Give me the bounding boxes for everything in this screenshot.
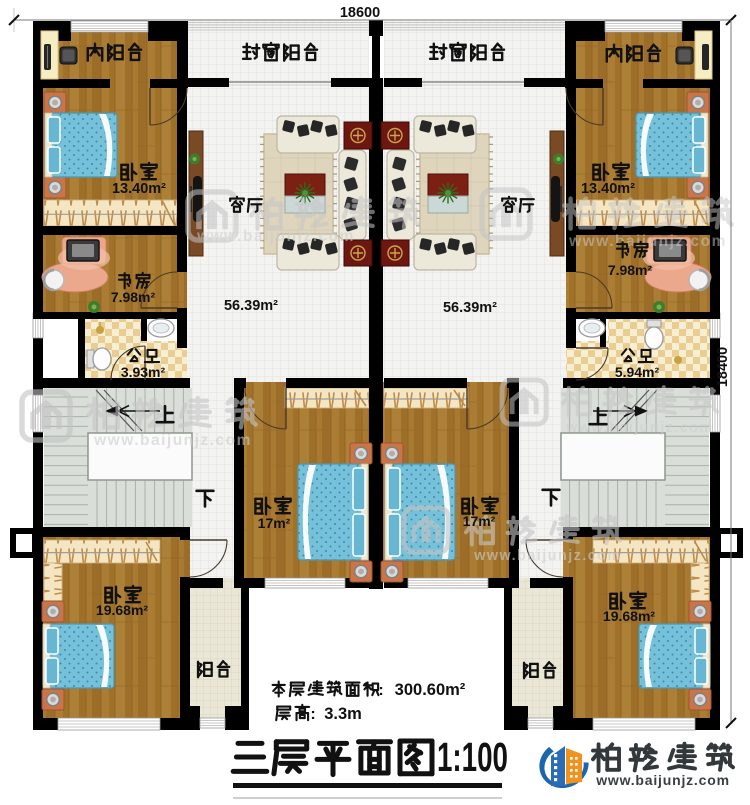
svg-text:300.60m²: 300.60m² — [395, 681, 466, 699]
svg-text:19.68m²: 19.68m² — [96, 602, 148, 618]
svg-text:13.40m²: 13.40m² — [112, 181, 166, 197]
svg-text:17m²: 17m² — [258, 515, 291, 531]
svg-text:7.98m²: 7.98m² — [608, 262, 653, 278]
svg-text:1:100: 1:100 — [437, 734, 508, 780]
svg-text:www.baijunjz.com: www.baijunjz.com — [595, 772, 730, 788]
svg-text:56.39m²: 56.39m² — [224, 298, 278, 314]
svg-text:7.98m²: 7.98m² — [111, 289, 156, 305]
svg-text:19.68m²: 19.68m² — [603, 608, 655, 624]
svg-text:56.39m²: 56.39m² — [443, 300, 497, 316]
svg-text::: : — [378, 682, 383, 699]
svg-text:www.baijunjz.com: www.baijunjz.com — [93, 432, 252, 449]
svg-text::: : — [310, 706, 315, 723]
svg-text:5.94m²: 5.94m² — [615, 364, 660, 380]
svg-text:18600: 18600 — [340, 5, 380, 21]
svg-text:www.baijunjz.com: www.baijunjz.com — [565, 420, 713, 436]
svg-text:13.40m²: 13.40m² — [581, 181, 635, 197]
svg-text:18400: 18400 — [715, 347, 731, 387]
svg-text:3.93m²: 3.93m² — [121, 364, 166, 380]
svg-text:17m²: 17m² — [463, 513, 496, 529]
svg-text:www.baijunjz.com: www.baijunjz.com — [473, 548, 621, 564]
svg-text:3.3m: 3.3m — [324, 705, 362, 723]
svg-text:www.baijunjz.com: www.baijunjz.com — [196, 228, 355, 245]
